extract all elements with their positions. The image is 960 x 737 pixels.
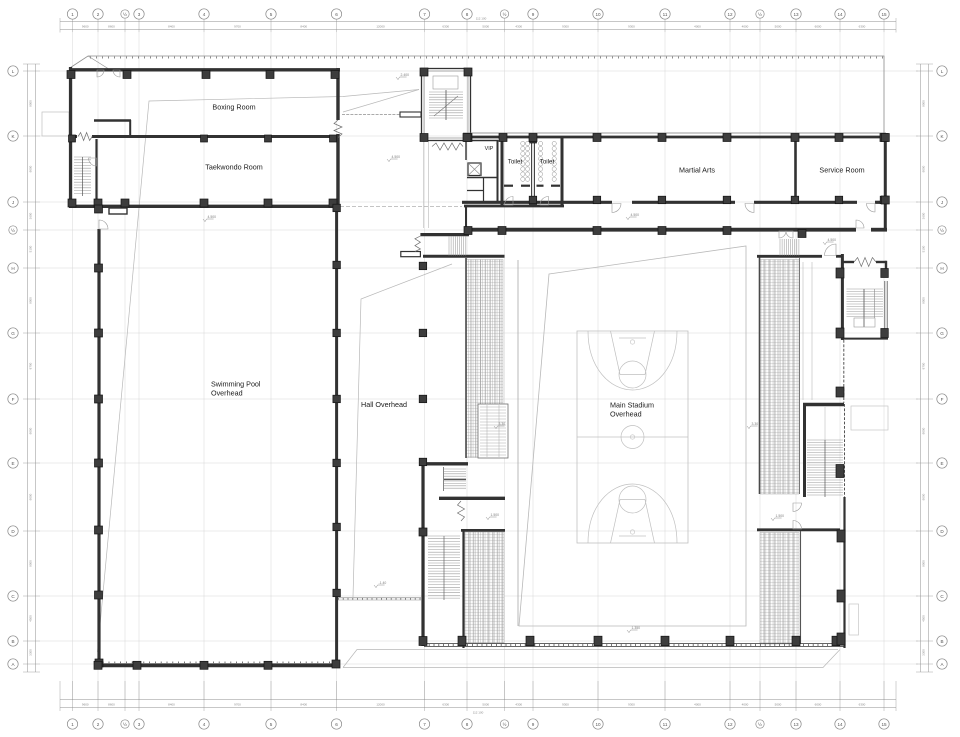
svg-text:9600: 9600 bbox=[82, 25, 89, 29]
svg-text:7: 7 bbox=[423, 12, 426, 17]
svg-text:15: 15 bbox=[881, 722, 887, 727]
svg-text:½: ½ bbox=[940, 227, 944, 233]
svg-text:4: 4 bbox=[203, 722, 206, 727]
svg-text:Toilet: Toilet bbox=[508, 159, 523, 166]
svg-text:3300: 3300 bbox=[922, 649, 926, 656]
svg-text:4300: 4300 bbox=[515, 703, 522, 707]
svg-text:4000: 4000 bbox=[694, 25, 701, 29]
svg-text:9600: 9600 bbox=[82, 703, 89, 707]
svg-text:Taekwondo Room: Taekwondo Room bbox=[205, 163, 263, 172]
svg-text:9000: 9000 bbox=[922, 297, 926, 304]
svg-text:Main Stadium: Main Stadium bbox=[610, 401, 654, 410]
svg-text:3300: 3300 bbox=[29, 649, 33, 656]
svg-text:7: 7 bbox=[423, 722, 426, 727]
svg-text:½: ½ bbox=[123, 11, 127, 17]
svg-text:½: ½ bbox=[758, 11, 762, 17]
svg-text:6300: 6300 bbox=[442, 25, 449, 29]
svg-text:112 100: 112 100 bbox=[476, 17, 487, 21]
svg-text:E: E bbox=[11, 461, 14, 466]
svg-text:9000: 9000 bbox=[29, 100, 33, 107]
svg-text:12000: 12000 bbox=[376, 25, 385, 29]
svg-text:5000: 5000 bbox=[482, 25, 489, 29]
svg-text:4.500: 4.500 bbox=[208, 215, 217, 219]
svg-text:6300: 6300 bbox=[859, 25, 866, 29]
svg-text:Swimming Pool: Swimming Pool bbox=[211, 380, 261, 389]
svg-text:9300: 9300 bbox=[562, 25, 569, 29]
svg-text:J: J bbox=[941, 200, 943, 205]
svg-text:G: G bbox=[940, 331, 944, 336]
svg-text:3600: 3600 bbox=[29, 212, 33, 219]
svg-text:9000: 9000 bbox=[29, 297, 33, 304]
svg-text:9000: 9000 bbox=[922, 427, 926, 434]
svg-text:½: ½ bbox=[503, 11, 507, 17]
svg-text:5000: 5000 bbox=[775, 25, 782, 29]
svg-text:3600: 3600 bbox=[922, 212, 926, 219]
svg-text:4.500: 4.500 bbox=[392, 155, 401, 159]
svg-text:E: E bbox=[940, 461, 943, 466]
svg-text:8: 8 bbox=[466, 722, 469, 727]
svg-text:5: 5 bbox=[270, 722, 273, 727]
svg-text:1: 1 bbox=[71, 722, 74, 727]
svg-text:13: 13 bbox=[793, 722, 799, 727]
svg-text:5000: 5000 bbox=[775, 703, 782, 707]
svg-text:6: 6 bbox=[335, 722, 338, 727]
svg-text:Overhead: Overhead bbox=[610, 410, 642, 419]
svg-text:5100: 5100 bbox=[922, 245, 926, 252]
svg-text:F: F bbox=[12, 397, 15, 402]
svg-text:9300: 9300 bbox=[562, 703, 569, 707]
svg-text:9700: 9700 bbox=[234, 25, 241, 29]
svg-text:1.500: 1.500 bbox=[776, 514, 785, 518]
svg-text:Hall Overhead: Hall Overhead bbox=[361, 400, 407, 409]
svg-text:2: 2 bbox=[97, 12, 100, 17]
svg-text:9000: 9000 bbox=[29, 427, 33, 434]
svg-text:13: 13 bbox=[793, 12, 799, 17]
svg-text:9000: 9000 bbox=[29, 165, 33, 172]
svg-text:1.500: 1.500 bbox=[491, 513, 500, 517]
svg-text:H: H bbox=[11, 266, 14, 271]
svg-text:8600: 8600 bbox=[108, 25, 115, 29]
svg-text:½: ½ bbox=[503, 721, 507, 727]
svg-text:J: J bbox=[12, 200, 14, 205]
svg-text:10: 10 bbox=[595, 722, 601, 727]
svg-text:3.30: 3.30 bbox=[499, 422, 506, 426]
svg-text:14: 14 bbox=[837, 722, 843, 727]
svg-text:11: 11 bbox=[663, 12, 668, 17]
svg-text:12: 12 bbox=[727, 12, 733, 17]
svg-text:Overhead: Overhead bbox=[211, 389, 243, 398]
svg-text:8400: 8400 bbox=[168, 25, 175, 29]
svg-text:½: ½ bbox=[11, 227, 15, 233]
svg-text:9300: 9300 bbox=[628, 25, 635, 29]
svg-text:9: 9 bbox=[532, 12, 535, 17]
svg-text:9000: 9000 bbox=[922, 100, 926, 107]
svg-text:1: 1 bbox=[71, 12, 74, 17]
svg-text:8700: 8700 bbox=[922, 362, 926, 369]
svg-text:½: ½ bbox=[123, 721, 127, 727]
svg-text:-1.40: -1.40 bbox=[379, 581, 387, 585]
svg-text:3.30: 3.30 bbox=[752, 422, 759, 426]
svg-text:3: 3 bbox=[138, 12, 141, 17]
svg-text:4000: 4000 bbox=[742, 25, 749, 29]
svg-text:4000: 4000 bbox=[694, 703, 701, 707]
svg-text:B: B bbox=[11, 639, 14, 644]
svg-text:112 100: 112 100 bbox=[473, 711, 484, 715]
svg-text:2: 2 bbox=[97, 722, 100, 727]
svg-text:6000: 6000 bbox=[815, 703, 822, 707]
svg-text:8400: 8400 bbox=[300, 25, 307, 29]
svg-text:12000: 12000 bbox=[376, 703, 385, 707]
svg-text:5100: 5100 bbox=[29, 245, 33, 252]
svg-text:12: 12 bbox=[727, 722, 733, 727]
svg-text:15: 15 bbox=[881, 12, 887, 17]
svg-text:8: 8 bbox=[466, 12, 469, 17]
svg-text:9000: 9000 bbox=[922, 493, 926, 500]
svg-text:8700: 8700 bbox=[29, 362, 33, 369]
svg-text:4300: 4300 bbox=[515, 25, 522, 29]
svg-text:8400: 8400 bbox=[300, 703, 307, 707]
svg-text:9000: 9000 bbox=[922, 560, 926, 567]
svg-text:14: 14 bbox=[837, 12, 843, 17]
svg-text:4: 4 bbox=[203, 12, 206, 17]
svg-text:4.500: 4.500 bbox=[631, 213, 640, 217]
svg-text:G: G bbox=[11, 331, 15, 336]
svg-text:F: F bbox=[941, 397, 944, 402]
svg-text:Toilet: Toilet bbox=[540, 159, 555, 166]
svg-text:9000: 9000 bbox=[29, 560, 33, 567]
svg-text:4000: 4000 bbox=[742, 703, 749, 707]
svg-text:8400: 8400 bbox=[168, 703, 175, 707]
svg-text:2.400: 2.400 bbox=[401, 73, 410, 77]
svg-text:4500: 4500 bbox=[922, 615, 926, 622]
svg-text:VIP: VIP bbox=[485, 146, 494, 152]
svg-text:9000: 9000 bbox=[29, 493, 33, 500]
svg-text:Martial Arts: Martial Arts bbox=[679, 166, 715, 175]
svg-text:6300: 6300 bbox=[859, 703, 866, 707]
svg-text:B: B bbox=[940, 639, 943, 644]
svg-text:8600: 8600 bbox=[108, 703, 115, 707]
svg-text:4.500: 4.500 bbox=[828, 238, 837, 242]
svg-text:3: 3 bbox=[138, 722, 141, 727]
svg-text:5000: 5000 bbox=[482, 703, 489, 707]
svg-text:9: 9 bbox=[532, 722, 535, 727]
svg-text:10: 10 bbox=[595, 12, 601, 17]
svg-text:11: 11 bbox=[663, 722, 668, 727]
svg-text:L: L bbox=[12, 69, 15, 74]
svg-text:6000: 6000 bbox=[815, 25, 822, 29]
svg-text:½: ½ bbox=[758, 721, 762, 727]
svg-text:L: L bbox=[941, 69, 944, 74]
svg-text:6300: 6300 bbox=[442, 703, 449, 707]
svg-text:9700: 9700 bbox=[234, 703, 241, 707]
svg-text:9300: 9300 bbox=[628, 703, 635, 707]
svg-text:Boxing Room: Boxing Room bbox=[212, 103, 255, 112]
svg-text:Service Room: Service Room bbox=[819, 166, 864, 175]
svg-text:9000: 9000 bbox=[922, 165, 926, 172]
svg-text:5: 5 bbox=[270, 12, 273, 17]
svg-text:6: 6 bbox=[335, 12, 338, 17]
svg-text:H: H bbox=[940, 266, 943, 271]
svg-text:1.350: 1.350 bbox=[632, 626, 641, 630]
svg-text:4500: 4500 bbox=[29, 615, 33, 622]
